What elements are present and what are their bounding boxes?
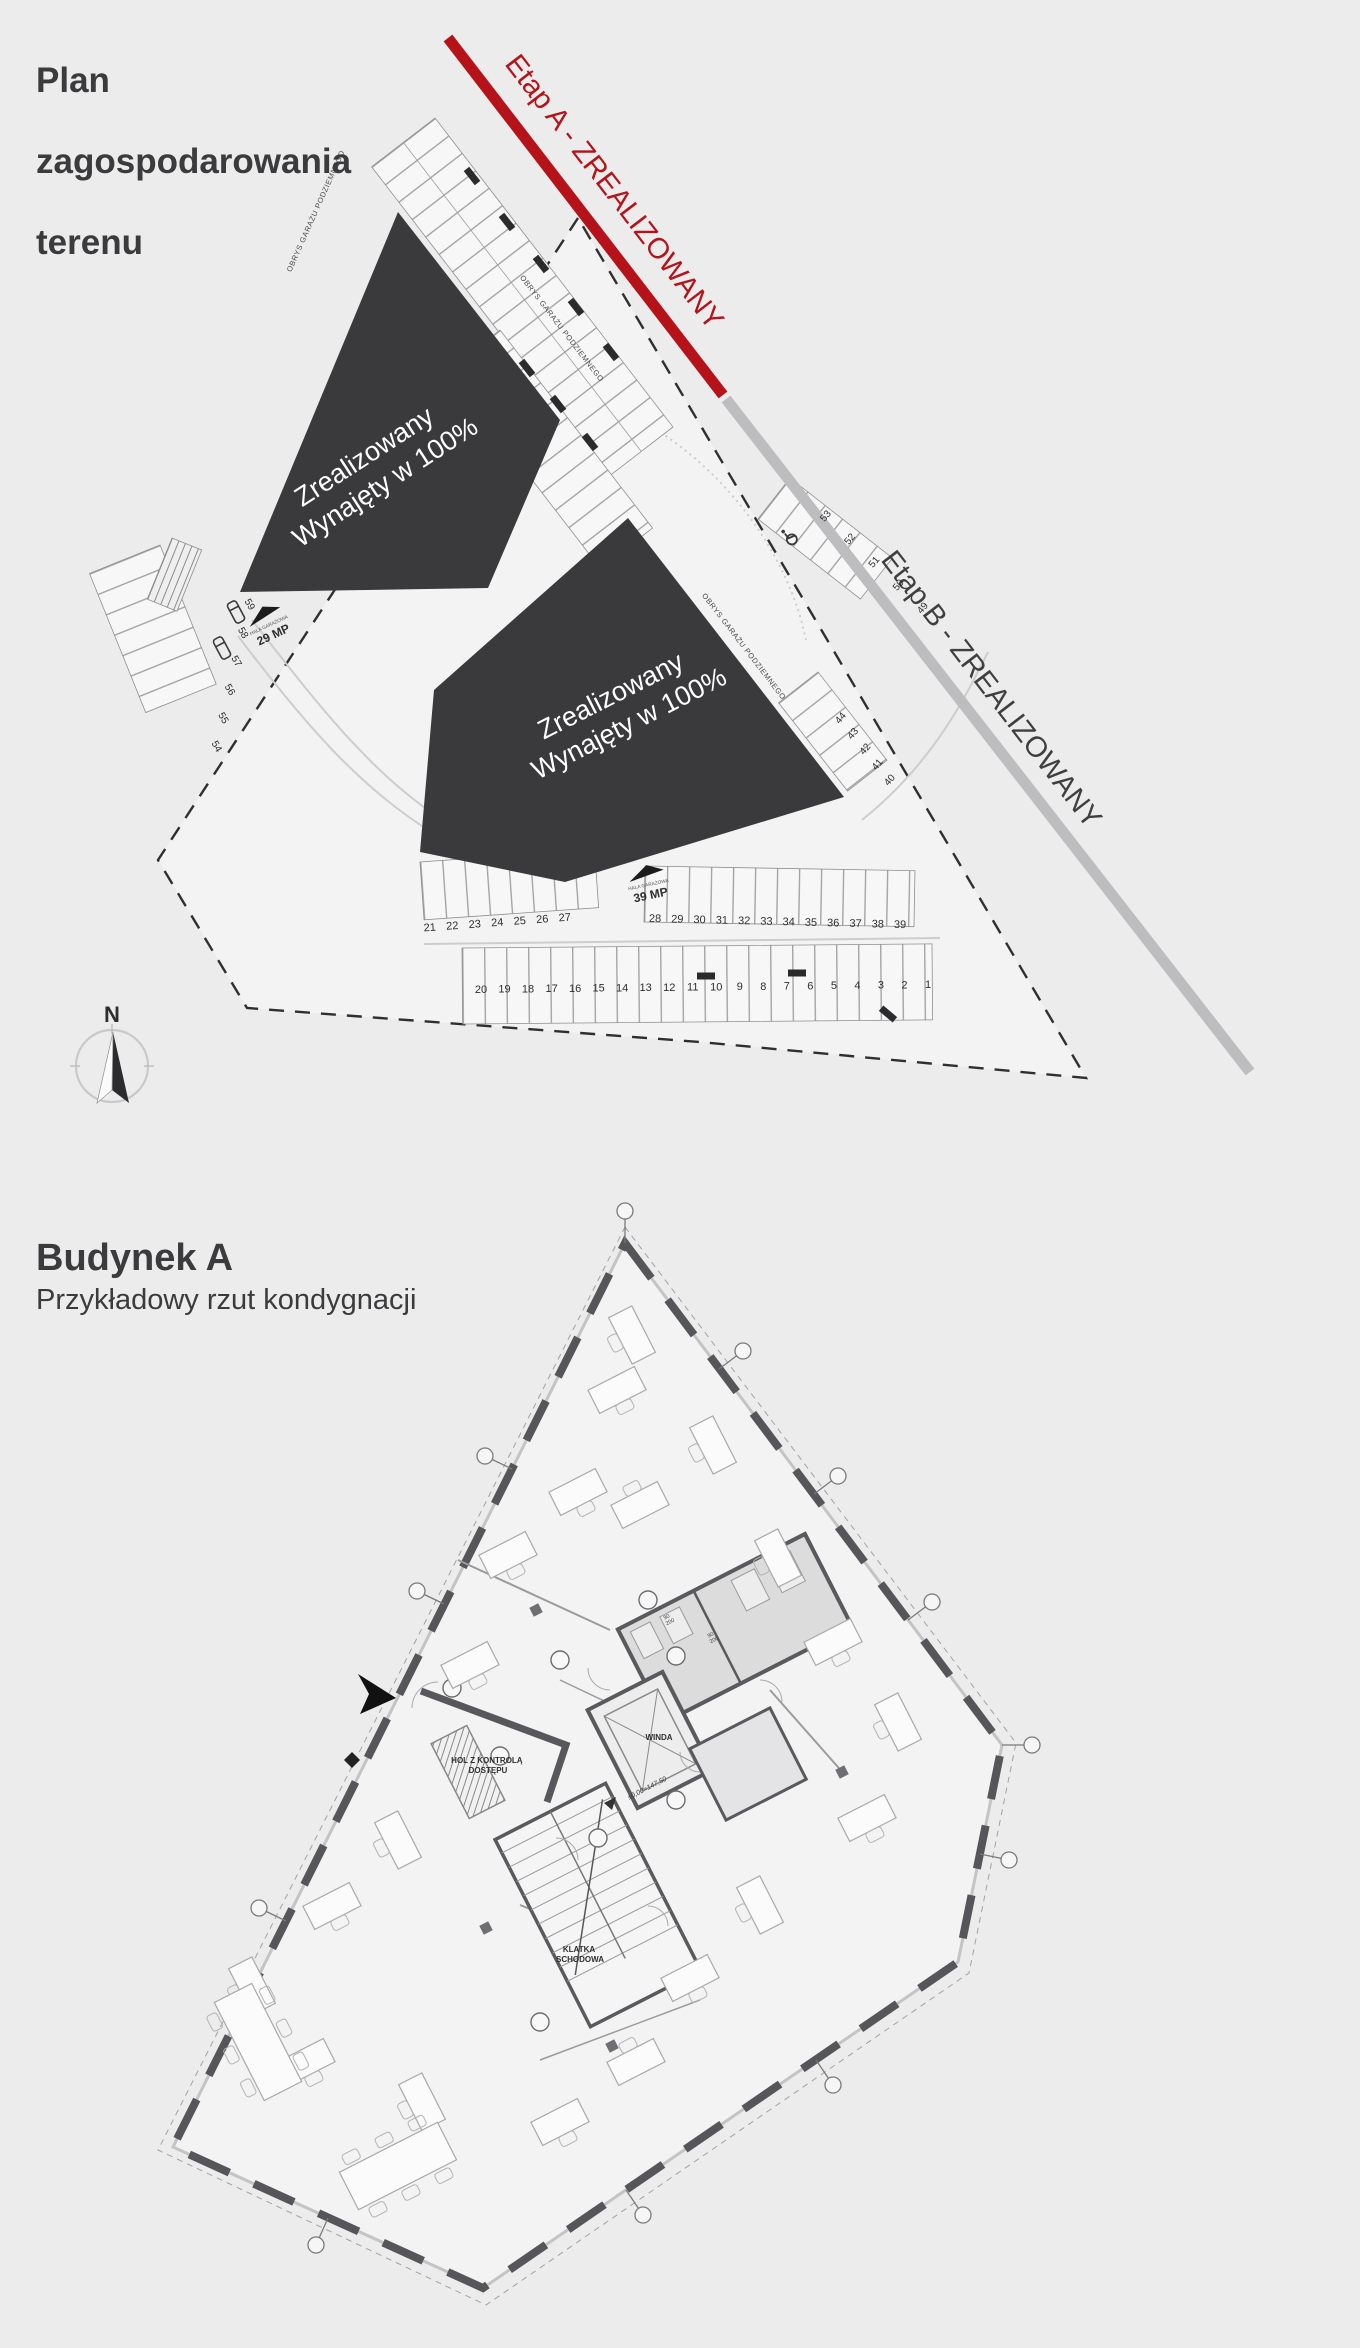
site-plan-title: Plan zagospodarowania terenu (36, 20, 351, 264)
plan-canvas: Zrealizowany Wynajęty w 100% Zrealizowan… (0, 0, 1360, 2348)
site-title-line2: zagospodarowania (36, 142, 351, 181)
parking-space-number: 24 (491, 917, 504, 930)
parking-space-number: 32 (738, 915, 750, 927)
parking-space-number: 10 (710, 981, 722, 993)
parking-space-number: 21 (423, 922, 436, 935)
parking-space-number: 28 (649, 913, 661, 925)
parking-space-number: 16 (569, 983, 581, 995)
parking-space-number: 20 (475, 984, 487, 996)
parking-space-number: 34 (782, 916, 794, 928)
parking-space-number: 54 (209, 739, 224, 755)
parking-space-number: 30 (693, 914, 705, 926)
parking-space-number: 5 (831, 980, 837, 992)
parking-space-number: 58 (235, 626, 250, 642)
compass-n-label: N (104, 1002, 120, 1027)
parking-space-number: 17 (545, 983, 557, 995)
building-a-title-block: Budynek A Przykładowy rzut kondygnacji (36, 1238, 416, 1317)
marker-diamond (344, 1752, 360, 1768)
parking-space-number: 31 (716, 915, 728, 927)
parking-space-number: 15 (593, 983, 605, 995)
building-a-title: Budynek A (36, 1238, 416, 1280)
parking-space-number: 35 (805, 917, 817, 929)
parking-space-number: 29 (671, 913, 683, 925)
parking-space-number: 19 (498, 984, 510, 996)
floor-plan: WINDA KLATKA SCHODOWA HOL Z KONTROLĄ DOS… (158, 1203, 1040, 2305)
parking-space-number: 8 (760, 981, 766, 993)
site-title-line1: Plan (36, 61, 110, 100)
parking-space-number: 59 (242, 597, 257, 613)
parking-space-number: 1 (925, 979, 931, 991)
parking-space-number: 22 (446, 920, 459, 933)
parking-space-number: 6 (807, 980, 813, 992)
compass-needle (112, 1032, 129, 1103)
elevator-label: WINDA (645, 1733, 672, 1742)
parking-space-number: 36 (827, 917, 839, 929)
parking-space-number: 4 (854, 980, 860, 992)
staircase-label: KLATKA SCHODOWA (556, 1945, 604, 1964)
parking-space-number: 3 (878, 980, 884, 992)
parking-space-number: 37 (849, 918, 861, 930)
entrance-arrow (358, 1674, 396, 1714)
parking-space-number: 7 (784, 981, 790, 993)
parking-space-number: 14 (616, 982, 628, 994)
parking-space-number: 27 (558, 912, 571, 925)
parking-space-number: 12 (663, 982, 675, 994)
parking-space-number: 18 (522, 983, 534, 995)
parking-space-number: 25 (513, 915, 526, 928)
site-title-line3: terenu (36, 223, 143, 262)
parking-space-number: 9 (737, 981, 743, 993)
parking-space-number: 11 (687, 982, 698, 994)
building-a-subtitle: Przykładowy rzut kondygnacji (36, 1284, 416, 1317)
parking-space-number: 33 (760, 916, 772, 928)
parking-space-number: 55 (215, 711, 230, 727)
parking-space-number: 39 (894, 919, 906, 931)
parking-space-number: 38 (872, 918, 884, 930)
parking-space-number: 56 (222, 682, 237, 698)
north-compass: N (70, 1002, 154, 1103)
parking-space-number: 13 (640, 982, 652, 994)
parking-space-number: 26 (536, 913, 549, 926)
parking-space-number: 23 (468, 918, 481, 931)
floorplan-outline (173, 1243, 1002, 2288)
parking-space-number: 2 (901, 979, 907, 991)
